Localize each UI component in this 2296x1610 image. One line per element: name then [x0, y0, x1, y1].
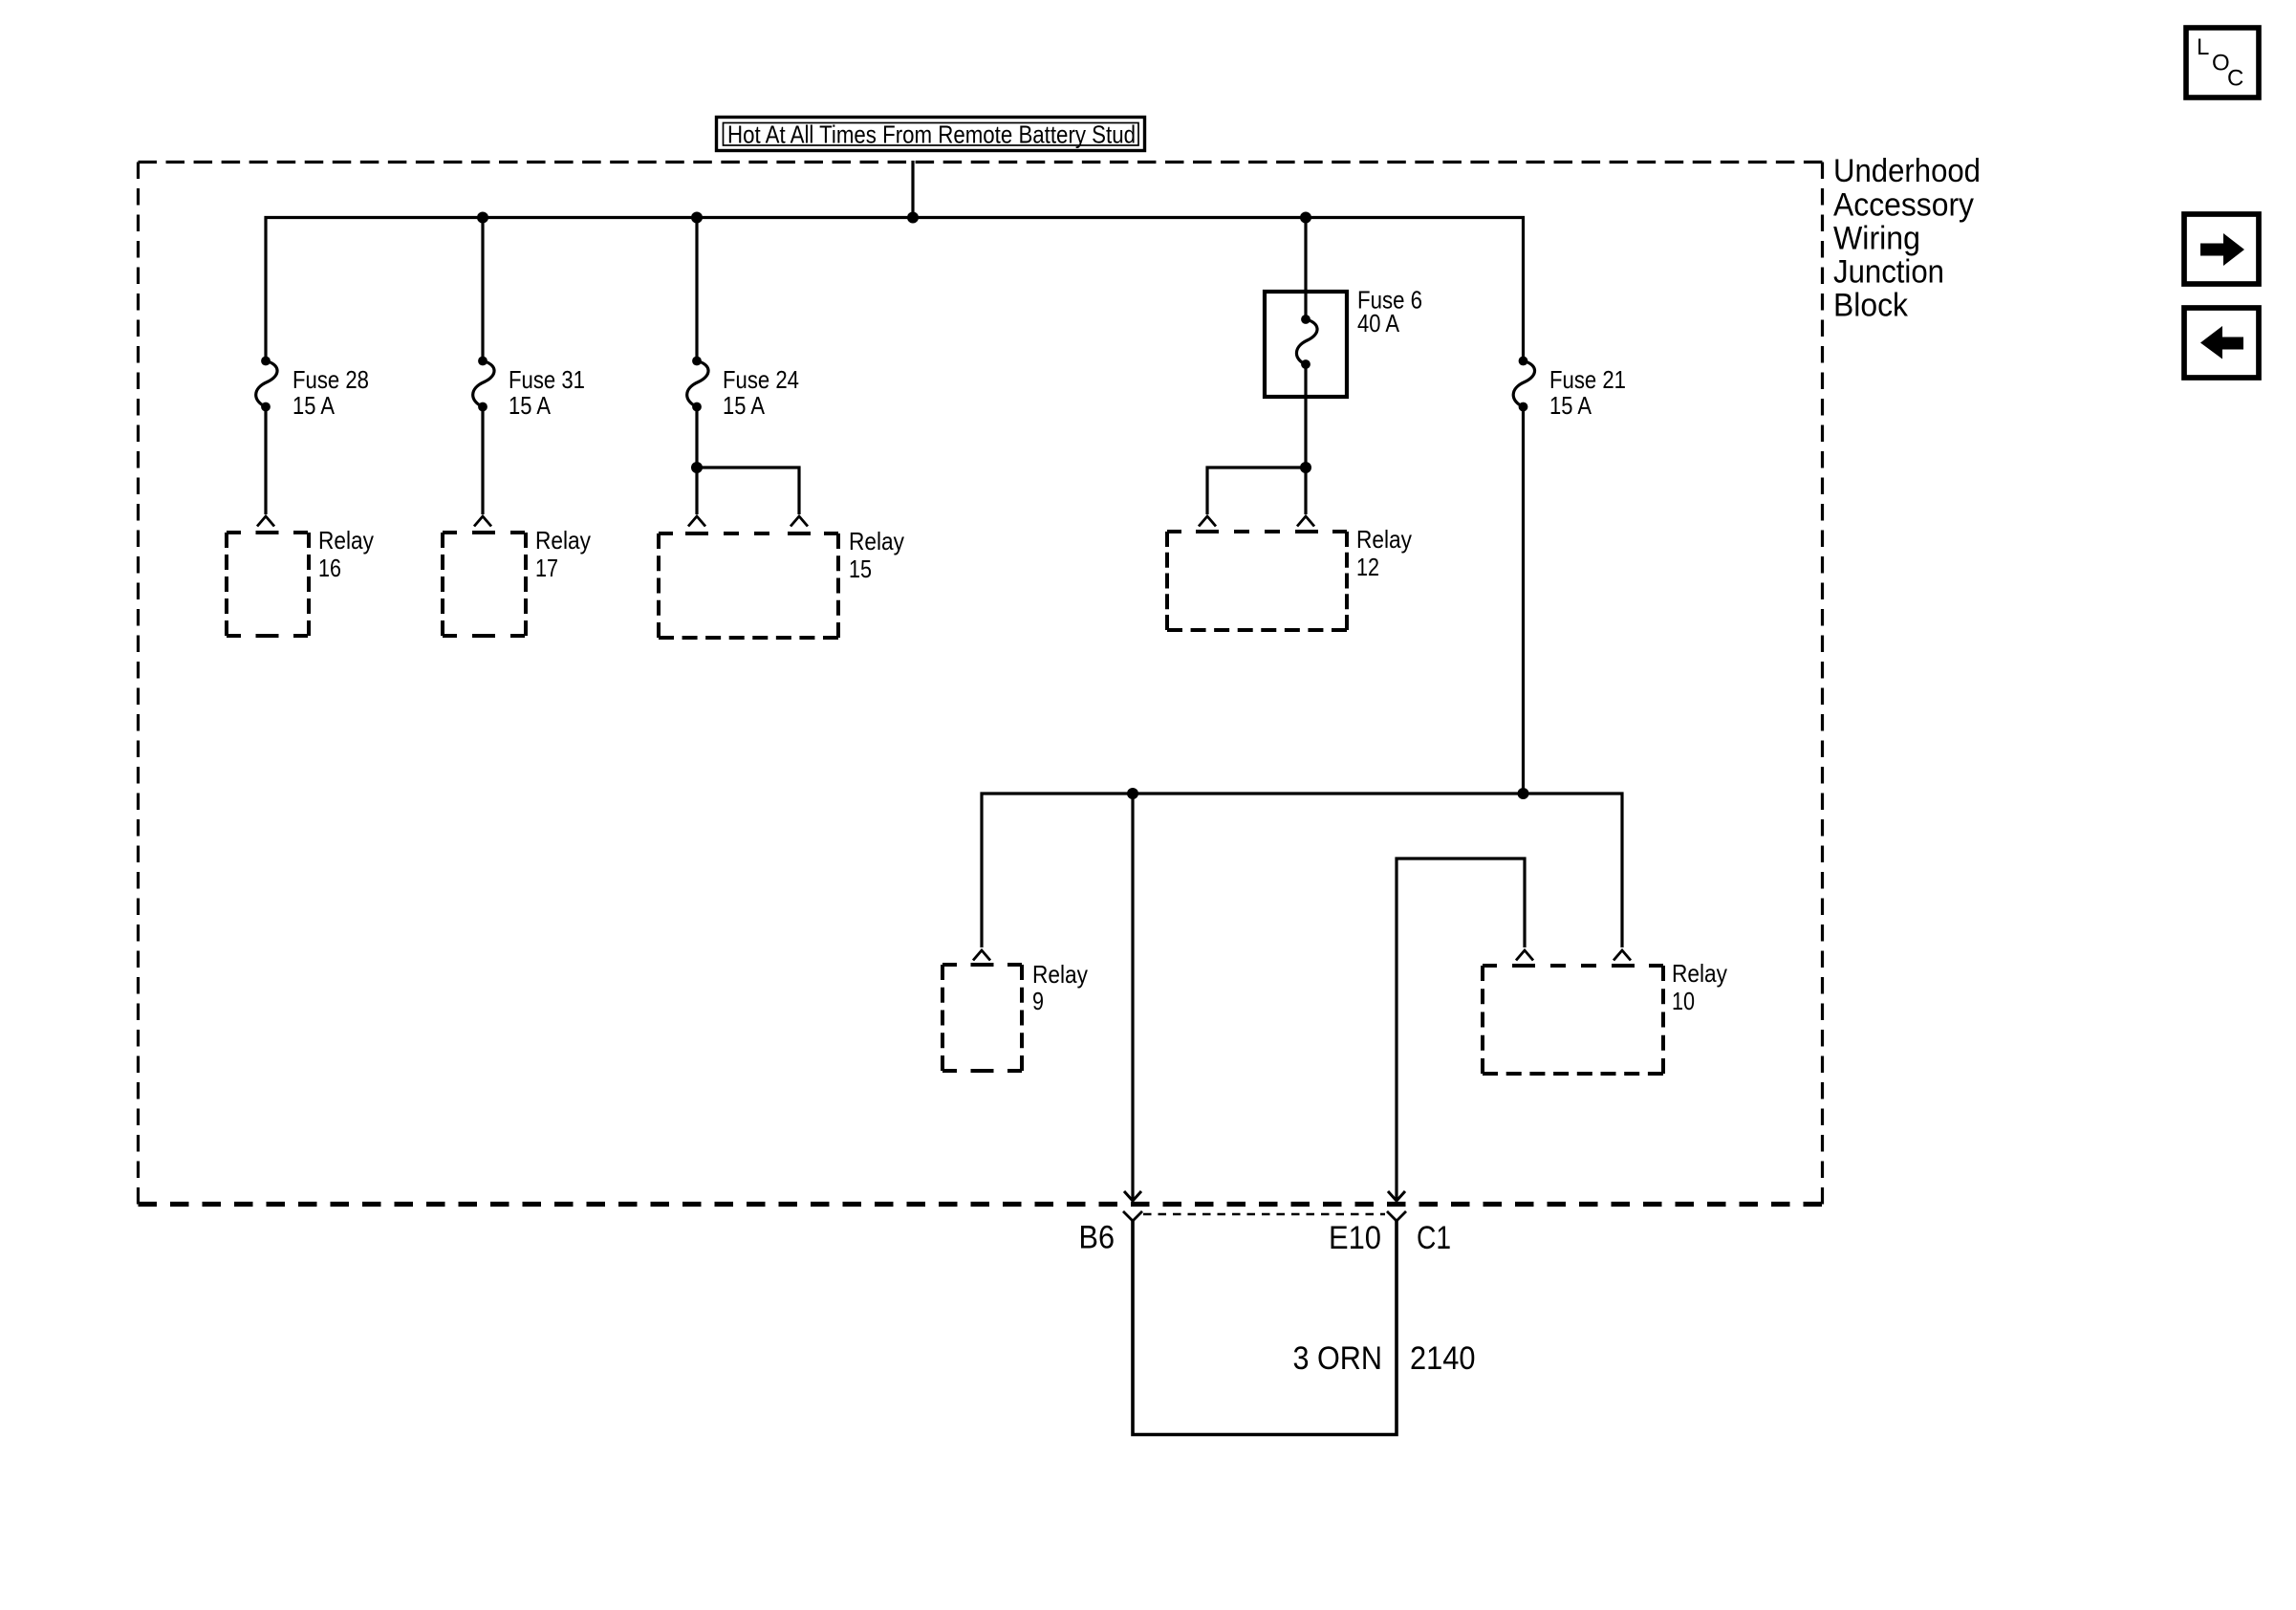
svg-text:15: 15	[849, 555, 872, 583]
svg-text:15 A: 15 A	[1549, 391, 1592, 420]
svg-text:Relay: Relay	[1672, 959, 1727, 988]
svg-text:10: 10	[1672, 987, 1695, 1015]
svg-text:16: 16	[318, 554, 341, 582]
svg-text:C1: C1	[1417, 1220, 1451, 1256]
svg-text:Junction: Junction	[1833, 254, 1944, 291]
svg-text:C: C	[2227, 66, 2243, 92]
svg-text:Fuse 24: Fuse 24	[723, 365, 799, 394]
svg-text:15 A: 15 A	[723, 391, 766, 420]
svg-text:9: 9	[1032, 987, 1044, 1015]
svg-text:2140: 2140	[1410, 1340, 1476, 1377]
svg-text:L: L	[2197, 34, 2209, 60]
svg-text:40 A: 40 A	[1357, 309, 1400, 337]
svg-text:17: 17	[535, 554, 558, 582]
svg-text:Relay: Relay	[318, 526, 374, 555]
svg-text:Accessory: Accessory	[1833, 186, 1974, 223]
svg-text:Relay: Relay	[1356, 525, 1412, 554]
svg-text:Block: Block	[1833, 288, 1909, 324]
svg-text:Relay: Relay	[1032, 960, 1088, 989]
svg-text:Wiring: Wiring	[1833, 220, 1920, 256]
svg-text:Relay: Relay	[535, 526, 591, 555]
svg-text:Fuse 31: Fuse 31	[509, 365, 585, 394]
svg-text:Fuse 21: Fuse 21	[1549, 365, 1626, 394]
svg-text:15 A: 15 A	[292, 391, 336, 420]
svg-text:Relay: Relay	[849, 527, 904, 555]
svg-text:B6: B6	[1079, 1220, 1116, 1256]
svg-text:E10: E10	[1329, 1220, 1381, 1256]
svg-text:Fuse 28: Fuse 28	[292, 365, 369, 394]
svg-text:Hot At All Times From Remote B: Hot At All Times From Remote Battery Stu…	[727, 120, 1136, 149]
svg-text:12: 12	[1356, 553, 1379, 581]
svg-text:3 ORN: 3 ORN	[1293, 1340, 1383, 1377]
svg-text:Underhood: Underhood	[1833, 153, 1981, 189]
svg-text:15 A: 15 A	[509, 391, 552, 420]
